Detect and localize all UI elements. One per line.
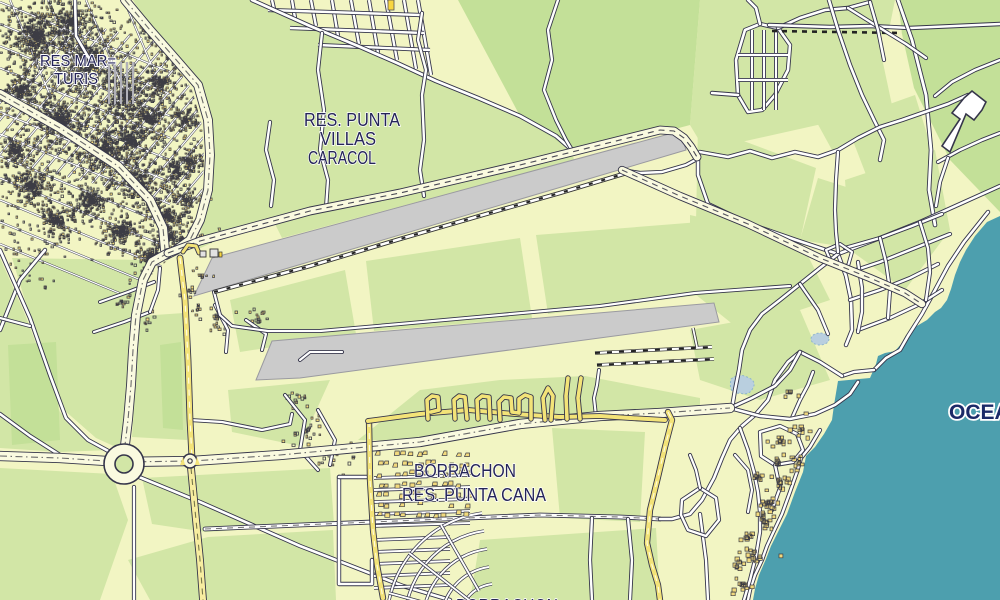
svg-text:BORRACHON: BORRACHON [456,596,558,600]
svg-text:RES. PUNTA CANA: RES. PUNTA CANA [402,485,546,505]
svg-text:CARACOL: CARACOL [308,148,376,168]
svg-text:VILLAS: VILLAS [320,129,376,149]
svg-text:RES MAR=: RES MAR= [40,53,116,70]
svg-text:OCEAN: OCEAN [949,401,1000,424]
svg-text:TURIS: TURIS [54,71,98,88]
svg-text:BORRACHON: BORRACHON [414,461,516,481]
svg-text:RES. PUNTA: RES. PUNTA [304,110,400,130]
